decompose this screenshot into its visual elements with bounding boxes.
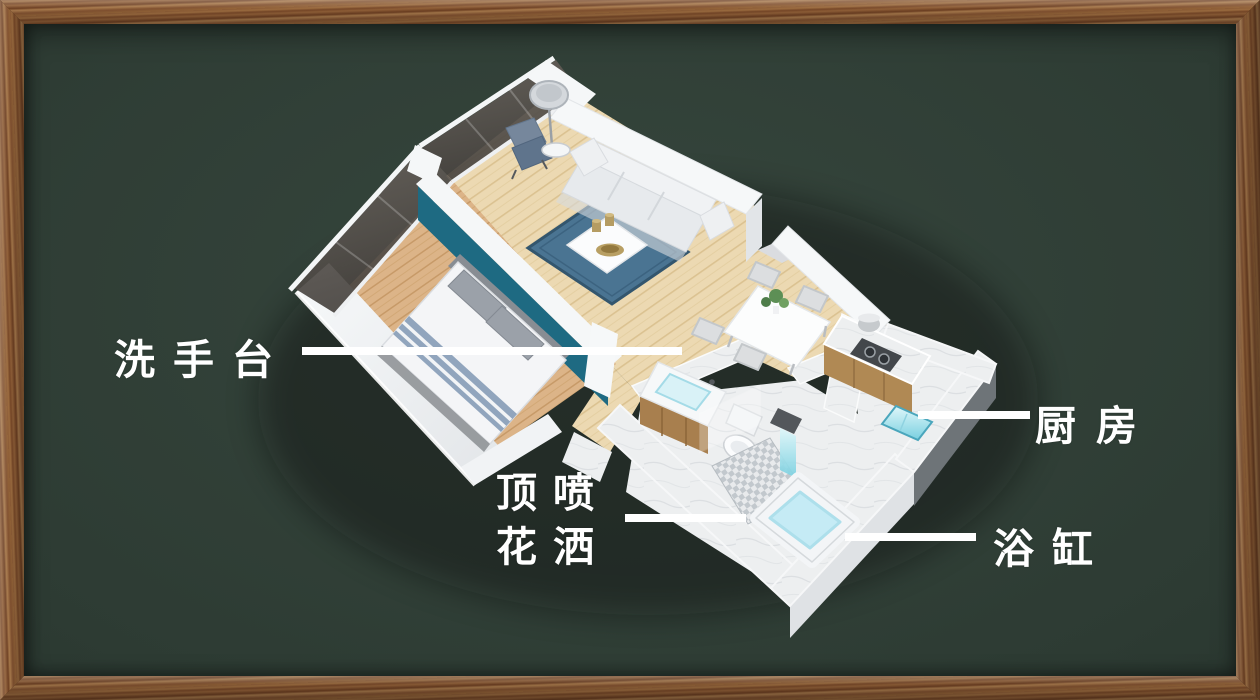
- bathtub-label: 浴缸: [993, 515, 1111, 575]
- bathtub-callout-line: [845, 533, 976, 541]
- washbasin-label: 洗手台: [114, 326, 291, 386]
- framed-floorplan-scene: 洗手台 厨房 顶喷 花洒 浴缸: [0, 0, 1260, 700]
- kitchen-callout-line: [918, 411, 1030, 419]
- shower-column: [780, 428, 796, 478]
- washbasin-callout-line: [302, 347, 682, 355]
- shower-head-label: 顶喷 花洒: [496, 466, 610, 574]
- frame-left: [0, 0, 24, 700]
- basin-faucet: [709, 379, 715, 385]
- burner-2: [879, 354, 889, 364]
- shower-head-callout-line: [625, 514, 746, 522]
- kitchen-label: 厨房: [1035, 392, 1157, 452]
- plant-vase: [773, 306, 779, 314]
- side-table: [542, 143, 570, 157]
- shower-head-label-line2: 花洒: [496, 520, 610, 574]
- shower-head-label-line1: 顶喷: [496, 466, 610, 520]
- burner: [865, 347, 875, 357]
- frame-bottom: [0, 676, 1260, 700]
- frame-top: [0, 0, 1260, 24]
- frame-right: [1236, 0, 1260, 700]
